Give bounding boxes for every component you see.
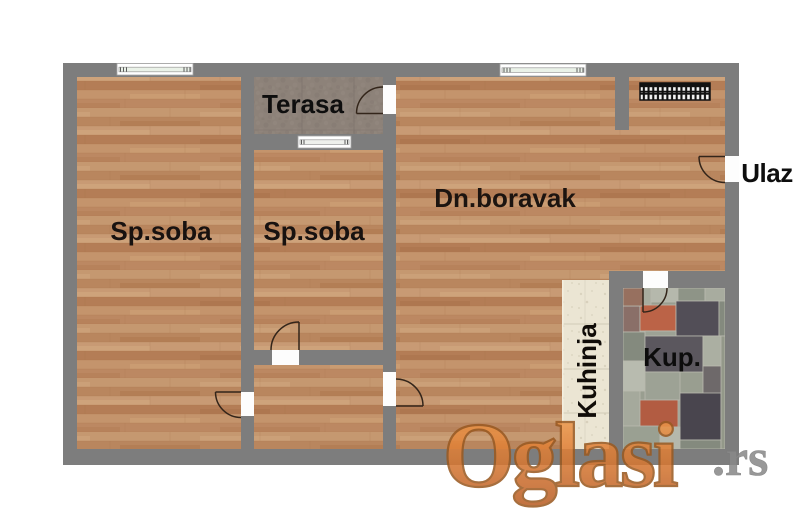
svg-text:Sp.soba: Sp.soba [263,216,365,246]
svg-text:Terasa: Terasa [262,89,344,119]
svg-text:Kup.: Kup. [643,342,701,372]
svg-text:Sp.soba: Sp.soba [110,216,212,246]
svg-text:Ulaz: Ulaz [741,158,793,188]
svg-text:Dn.boravak: Dn.boravak [434,183,576,213]
svg-text:.rs: .rs [712,430,768,487]
svg-text:Oglasi: Oglasi [443,404,678,506]
